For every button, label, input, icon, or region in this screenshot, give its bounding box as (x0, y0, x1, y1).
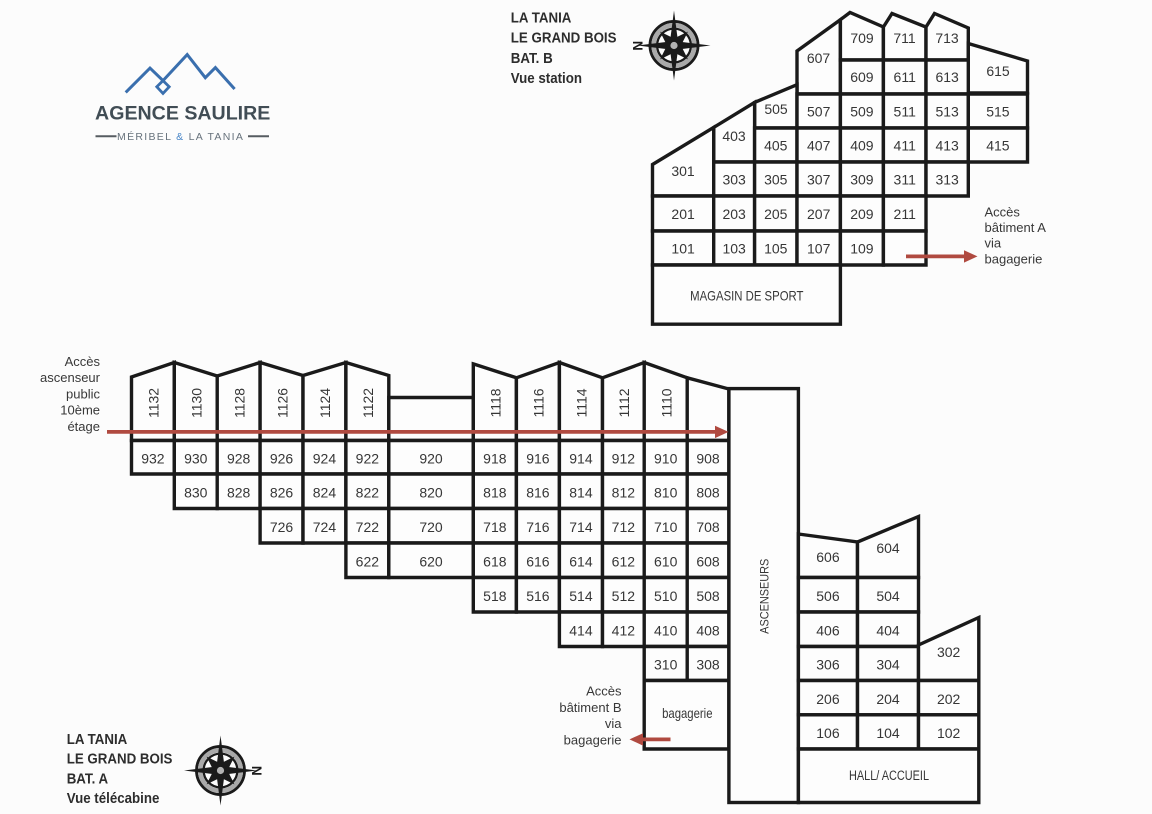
svg-text:912: 912 (612, 450, 636, 466)
svg-text:1116: 1116 (531, 388, 547, 417)
svg-text:511: 511 (894, 103, 917, 119)
svg-text:604: 604 (876, 540, 900, 556)
svg-text:408: 408 (696, 622, 720, 638)
svg-text:610: 610 (654, 553, 678, 569)
svg-text:406: 406 (816, 622, 840, 638)
svg-text:1118: 1118 (488, 388, 504, 417)
svg-text:920: 920 (419, 450, 443, 466)
svg-text:203: 203 (722, 206, 746, 222)
svg-text:816: 816 (526, 484, 550, 500)
svg-text:611: 611 (894, 69, 917, 85)
svg-text:713: 713 (935, 30, 959, 46)
svg-text:bâtiment B: bâtiment B (559, 700, 621, 715)
svg-text:204: 204 (876, 691, 900, 707)
svg-text:1126: 1126 (274, 388, 290, 418)
svg-text:bâtiment A: bâtiment A (985, 220, 1047, 235)
svg-text:ascenseur: ascenseur (40, 370, 101, 385)
svg-text:205: 205 (764, 206, 788, 222)
svg-text:824: 824 (313, 484, 337, 500)
svg-text:104: 104 (876, 725, 900, 741)
svg-text:505: 505 (764, 101, 788, 117)
svg-text:Accès: Accès (65, 354, 101, 369)
svg-text:410: 410 (654, 622, 678, 638)
svg-text:609: 609 (850, 69, 874, 85)
svg-text:405: 405 (764, 137, 788, 153)
svg-text:613: 613 (935, 69, 959, 85)
svg-text:620: 620 (419, 553, 443, 569)
svg-text:412: 412 (612, 622, 636, 638)
svg-text:515: 515 (986, 103, 1010, 119)
svg-text:201: 201 (671, 206, 695, 222)
svg-text:302: 302 (937, 644, 961, 660)
svg-text:via: via (985, 236, 1002, 251)
svg-text:607: 607 (807, 50, 831, 66)
svg-text:614: 614 (569, 553, 593, 569)
svg-text:MAGASIN DE SPORT: MAGASIN DE SPORT (690, 287, 803, 304)
svg-text:615: 615 (986, 63, 1010, 79)
svg-text:1130: 1130 (188, 388, 204, 418)
svg-text:808: 808 (696, 484, 720, 500)
svg-text:N: N (630, 41, 645, 51)
svg-text:820: 820 (419, 484, 443, 500)
svg-text:109: 109 (850, 240, 874, 256)
svg-text:709: 709 (850, 30, 874, 46)
svg-text:608: 608 (696, 553, 720, 569)
svg-text:LE GRAND BOIS: LE GRAND BOIS (67, 750, 173, 767)
svg-text:1128: 1128 (231, 388, 247, 418)
svg-text:301: 301 (671, 163, 695, 179)
svg-text:LA TANIA: LA TANIA (511, 9, 572, 26)
svg-text:HALL/ ACCUEIL: HALL/ ACCUEIL (849, 768, 929, 784)
svg-text:106: 106 (816, 725, 840, 741)
svg-text:Accès: Accès (586, 684, 622, 699)
svg-text:720: 720 (419, 519, 443, 535)
svg-text:MÉRIBEL & LA TANIA: MÉRIBEL & LA TANIA (117, 130, 244, 143)
svg-text:814: 814 (569, 484, 593, 500)
svg-text:622: 622 (356, 553, 380, 569)
svg-text:307: 307 (807, 171, 831, 187)
svg-text:722: 722 (356, 519, 380, 535)
svg-text:202: 202 (937, 691, 961, 707)
svg-text:303: 303 (722, 171, 746, 187)
svg-text:Vue station: Vue station (511, 69, 582, 86)
svg-text:510: 510 (654, 588, 678, 604)
svg-text:812: 812 (612, 484, 636, 500)
svg-text:932: 932 (141, 450, 165, 466)
svg-text:710: 710 (654, 519, 678, 535)
svg-text:714: 714 (569, 519, 593, 535)
svg-text:407: 407 (807, 137, 831, 153)
svg-text:309: 309 (850, 171, 874, 187)
svg-text:411: 411 (894, 137, 917, 153)
svg-text:718: 718 (483, 519, 507, 535)
svg-text:LE GRAND BOIS: LE GRAND BOIS (511, 29, 617, 46)
svg-text:10ème: 10ème (60, 403, 100, 418)
svg-text:918: 918 (483, 450, 507, 466)
svg-text:206: 206 (816, 691, 840, 707)
svg-text:404: 404 (876, 622, 900, 638)
svg-text:708: 708 (696, 519, 720, 535)
svg-text:409: 409 (850, 137, 874, 153)
svg-text:310: 310 (654, 657, 678, 673)
svg-text:102: 102 (937, 725, 961, 741)
svg-text:305: 305 (764, 171, 788, 187)
svg-text:612: 612 (612, 553, 636, 569)
svg-text:414: 414 (569, 622, 593, 638)
svg-text:930: 930 (184, 450, 208, 466)
svg-text:bagagerie: bagagerie (564, 732, 622, 747)
svg-text:étage: étage (67, 419, 100, 434)
svg-text:105: 105 (764, 240, 788, 256)
svg-text:bagagerie: bagagerie (662, 706, 712, 721)
svg-text:413: 413 (935, 137, 959, 153)
svg-text:618: 618 (483, 553, 507, 569)
svg-text:1132: 1132 (146, 388, 162, 418)
svg-text:916: 916 (526, 450, 550, 466)
svg-text:N: N (249, 766, 264, 776)
svg-text:724: 724 (313, 519, 337, 535)
svg-text:908: 908 (696, 450, 720, 466)
svg-text:415: 415 (986, 137, 1010, 153)
svg-text:516: 516 (526, 588, 550, 604)
svg-text:826: 826 (270, 484, 294, 500)
svg-text:922: 922 (356, 450, 380, 466)
svg-text:209: 209 (850, 206, 874, 222)
svg-text:107: 107 (807, 240, 831, 256)
svg-text:512: 512 (612, 588, 636, 604)
svg-text:712: 712 (612, 519, 636, 535)
svg-text:822: 822 (356, 484, 380, 500)
svg-text:509: 509 (850, 103, 874, 119)
svg-text:616: 616 (526, 553, 550, 569)
svg-text:1110: 1110 (658, 388, 674, 417)
svg-text:403: 403 (722, 128, 746, 144)
svg-text:726: 726 (270, 519, 294, 535)
svg-text:Accès: Accès (985, 204, 1021, 219)
svg-text:513: 513 (935, 103, 959, 119)
svg-text:public: public (66, 386, 100, 401)
svg-text:313: 313 (935, 171, 959, 187)
svg-text:via: via (605, 716, 622, 731)
svg-text:716: 716 (526, 519, 550, 535)
svg-text:101: 101 (671, 240, 695, 256)
svg-text:810: 810 (654, 484, 678, 500)
svg-text:514: 514 (569, 588, 593, 604)
svg-text:914: 914 (569, 450, 593, 466)
svg-text:711: 711 (893, 30, 916, 46)
svg-text:BAT. A: BAT. A (67, 770, 108, 787)
svg-text:830: 830 (184, 484, 208, 500)
svg-text:924: 924 (313, 450, 337, 466)
svg-text:BAT. B: BAT. B (511, 49, 553, 66)
svg-text:304: 304 (876, 657, 900, 673)
svg-text:306: 306 (816, 657, 840, 673)
svg-text:506: 506 (816, 588, 840, 604)
svg-text:928: 928 (227, 450, 251, 466)
svg-text:AGENCE SAULIRE: AGENCE SAULIRE (95, 103, 270, 125)
svg-text:818: 818 (483, 484, 507, 500)
svg-text:LA TANIA: LA TANIA (67, 730, 128, 747)
svg-text:211: 211 (894, 206, 917, 222)
svg-text:207: 207 (807, 206, 831, 222)
svg-text:311: 311 (894, 171, 917, 187)
svg-text:1124: 1124 (317, 388, 333, 418)
svg-text:1112: 1112 (616, 388, 632, 417)
svg-text:504: 504 (876, 588, 900, 604)
svg-text:926: 926 (270, 450, 294, 466)
svg-text:Vue télécabine: Vue télécabine (67, 789, 160, 806)
svg-text:507: 507 (807, 103, 831, 119)
svg-text:1122: 1122 (360, 388, 376, 418)
svg-text:bagagerie: bagagerie (985, 251, 1043, 266)
svg-text:103: 103 (722, 240, 746, 256)
svg-text:1114: 1114 (574, 388, 590, 417)
svg-text:910: 910 (654, 450, 678, 466)
svg-text:ASCENSEURS: ASCENSEURS (758, 559, 772, 634)
svg-text:606: 606 (816, 549, 840, 565)
svg-text:518: 518 (483, 588, 507, 604)
svg-text:828: 828 (227, 484, 251, 500)
svg-text:308: 308 (696, 657, 720, 673)
svg-text:508: 508 (696, 588, 720, 604)
